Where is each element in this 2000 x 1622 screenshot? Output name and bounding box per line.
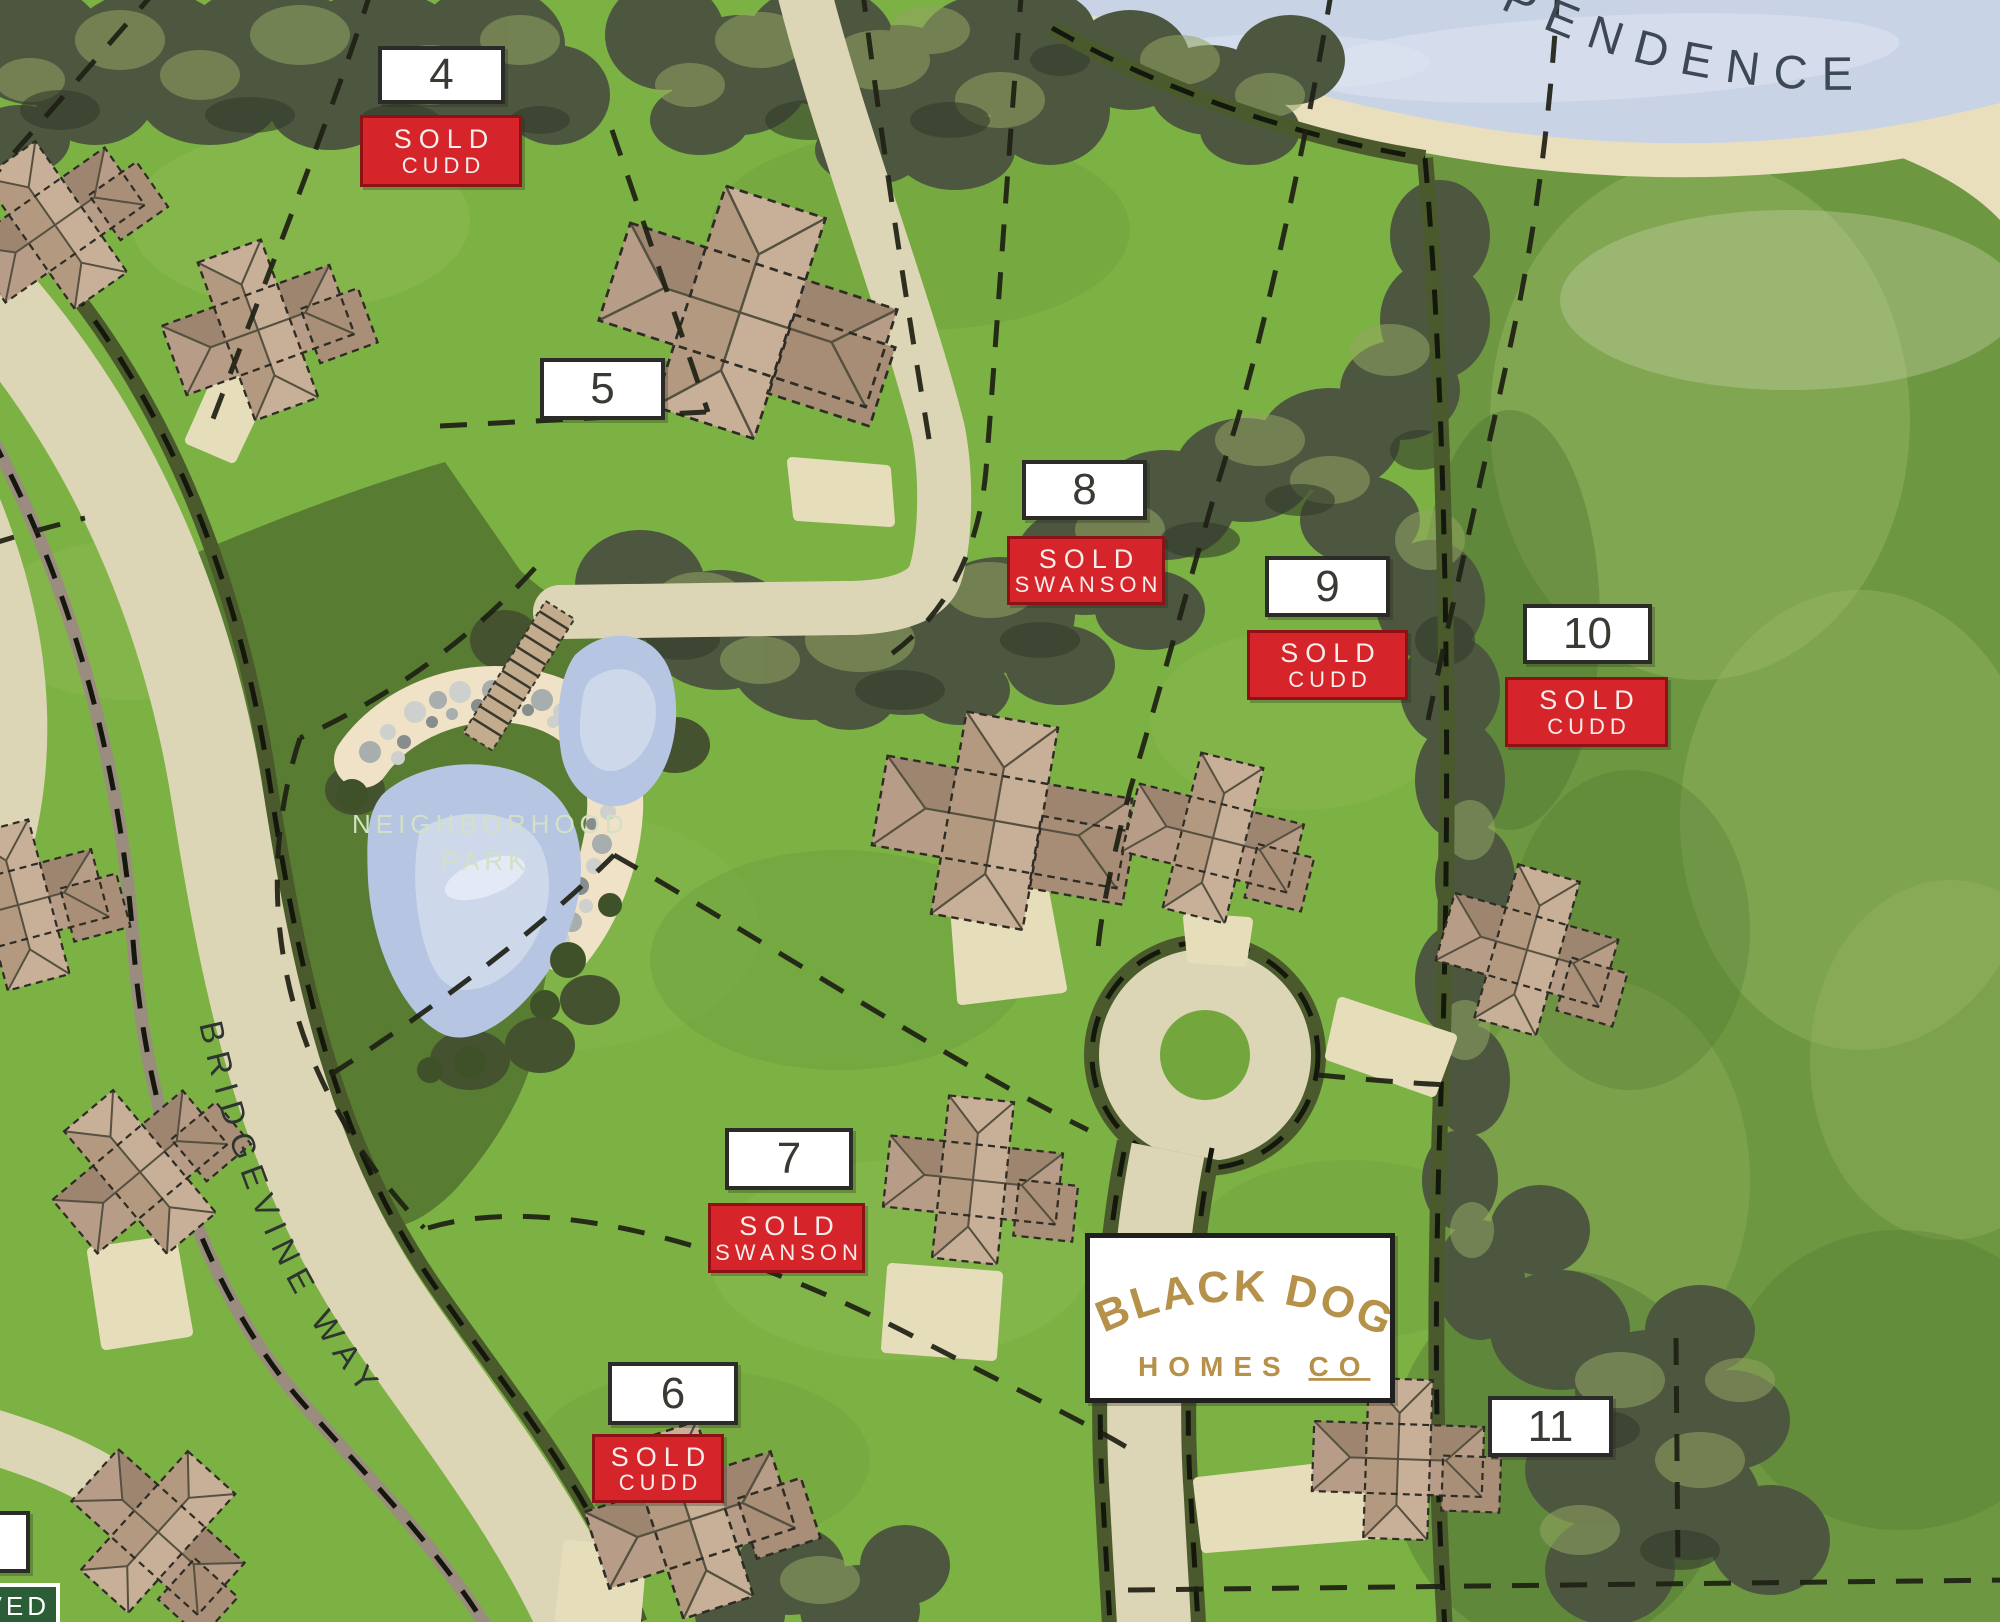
logo-artwork: BLACK DOG HOMES CO (1090, 1238, 1390, 1398)
developer-logo: BLACK DOG HOMES CO (1085, 1233, 1395, 1403)
lot-number: 10 (1563, 609, 1612, 659)
lot-badge-7[interactable]: 7 (725, 1128, 853, 1190)
lot-number: 6 (661, 1369, 685, 1419)
sold-buyer: CUDD (1547, 715, 1631, 738)
sold-status: SOLD (611, 1443, 713, 1471)
lot-badge-4[interactable]: 4 (378, 46, 505, 104)
sold-buyer: CUDD (619, 1471, 703, 1494)
lot-number: 4 (429, 50, 453, 100)
logo-top-text: BLACK DOG (1090, 1262, 1390, 1347)
park-label-line1: NEIGHBORHOOD (352, 806, 620, 843)
sold-tag-lot-10: SOLD CUDD (1505, 677, 1668, 747)
sold-tag-lot-9: SOLD CUDD (1247, 630, 1408, 700)
park-label: NEIGHBORHOOD PARK (352, 806, 620, 880)
lot-badge-9[interactable]: 9 (1265, 556, 1390, 617)
sold-status: SOLD (394, 125, 496, 153)
reserved-label: VED (0, 1591, 50, 1622)
lot-number: 7 (777, 1134, 801, 1184)
sold-buyer: CUDD (1288, 668, 1372, 691)
park-label-line2: PARK (352, 843, 620, 880)
sold-tag-lot-6: SOLD CUDD (592, 1434, 724, 1503)
lot-number: 5 (590, 364, 614, 414)
lot-badge-8[interactable]: 8 (1022, 460, 1147, 520)
lot-badge-11[interactable]: 11 (1488, 1396, 1613, 1457)
lot-badge-5[interactable]: 5 (540, 358, 665, 420)
logo-bottom-text: HOMES CO (1138, 1351, 1370, 1382)
lot-badge-partial[interactable] (0, 1511, 30, 1573)
sold-status: SOLD (1039, 545, 1141, 573)
sold-tag-lot-8: SOLD SWANSON (1007, 536, 1165, 605)
sold-status: SOLD (1280, 639, 1382, 667)
sold-tag-lot-7: SOLD SWANSON (708, 1203, 865, 1273)
lot-number: 8 (1072, 465, 1096, 515)
sold-buyer: SWANSON (1015, 573, 1163, 596)
lot-number: 11 (1528, 1402, 1574, 1452)
sold-status: SOLD (739, 1212, 841, 1240)
site-map: BRIDGEVINE WAY EPENDENCE 4 SOLD CUDD 5 8… (0, 0, 2000, 1622)
sold-tag-lot-4: SOLD CUDD (360, 115, 522, 187)
lot-number: 9 (1315, 562, 1339, 612)
sold-buyer: CUDD (402, 154, 486, 177)
reserved-tag: VED (0, 1583, 60, 1622)
lot-badge-10[interactable]: 10 (1523, 604, 1652, 664)
map-artwork: BRIDGEVINE WAY EPENDENCE (0, 0, 2000, 1622)
lot-badge-6[interactable]: 6 (608, 1362, 738, 1425)
sold-status: SOLD (1539, 686, 1641, 714)
sold-buyer: SWANSON (715, 1241, 863, 1264)
